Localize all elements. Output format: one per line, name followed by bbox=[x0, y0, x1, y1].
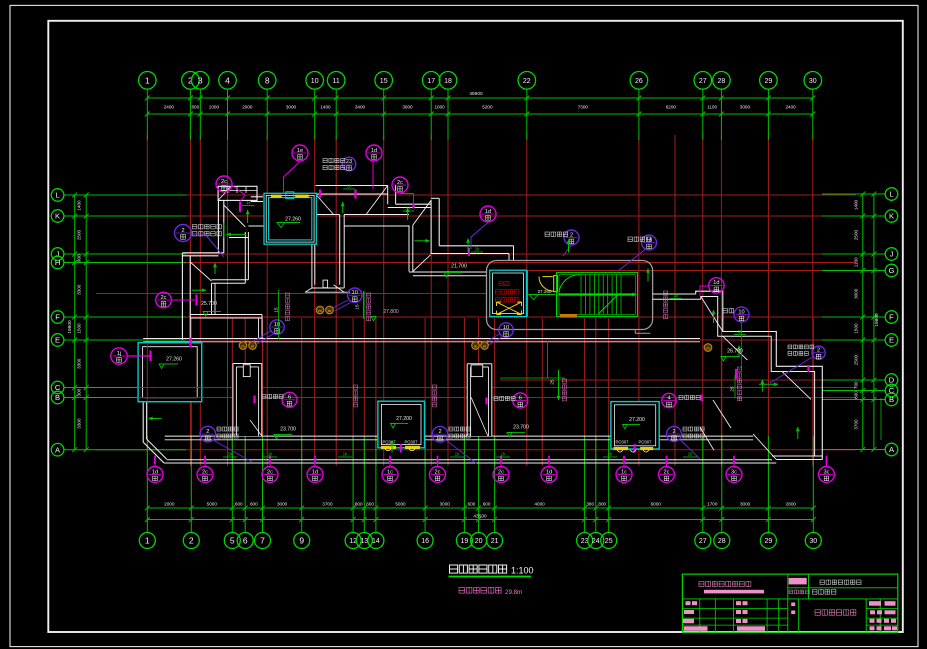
svg-text:1:100: 1:100 bbox=[511, 566, 534, 576]
svg-text:1: 1 bbox=[145, 75, 150, 85]
svg-text:B: B bbox=[889, 395, 894, 404]
svg-text:7300: 7300 bbox=[578, 105, 589, 110]
svg-text:27: 27 bbox=[699, 78, 707, 85]
svg-text:10: 10 bbox=[274, 322, 280, 328]
svg-text:1100: 1100 bbox=[707, 105, 717, 110]
svg-text:1500: 1500 bbox=[77, 323, 82, 334]
svg-text:45900: 45900 bbox=[469, 91, 483, 97]
svg-text:22: 22 bbox=[523, 78, 531, 85]
svg-text:PO307: PO307 bbox=[615, 440, 629, 445]
svg-text:21.700: 21.700 bbox=[451, 264, 467, 270]
svg-text:1c: 1c bbox=[387, 469, 393, 475]
svg-text:1d: 1d bbox=[646, 237, 652, 243]
svg-text:3400: 3400 bbox=[355, 105, 366, 110]
svg-text:2: 2 bbox=[438, 429, 441, 435]
svg-text:1e: 1e bbox=[297, 148, 303, 154]
svg-text:3000: 3000 bbox=[440, 502, 451, 507]
svg-text:25.700: 25.700 bbox=[201, 301, 217, 307]
svg-text:1d: 1d bbox=[485, 209, 491, 215]
svg-text:15: 15 bbox=[274, 307, 279, 313]
svg-text:F: F bbox=[889, 313, 894, 322]
svg-text:2000: 2000 bbox=[164, 502, 175, 507]
svg-text:2400: 2400 bbox=[785, 105, 796, 110]
svg-text:380: 380 bbox=[586, 502, 594, 507]
svg-text:6: 6 bbox=[288, 395, 291, 401]
svg-text:8: 8 bbox=[265, 75, 270, 85]
svg-text:15: 15 bbox=[380, 78, 388, 85]
svg-text:PO307: PO307 bbox=[382, 440, 396, 445]
svg-text:27: 27 bbox=[699, 538, 707, 545]
svg-text:15: 15 bbox=[355, 304, 360, 310]
svg-text:21: 21 bbox=[491, 538, 499, 545]
svg-text:27.200: 27.200 bbox=[629, 417, 645, 423]
svg-text:1400: 1400 bbox=[77, 200, 82, 211]
svg-text:800: 800 bbox=[598, 502, 606, 507]
svg-text:29: 29 bbox=[765, 538, 773, 545]
svg-text:24: 24 bbox=[592, 538, 600, 545]
svg-text:10: 10 bbox=[503, 325, 509, 331]
svg-text:3c: 3c bbox=[731, 469, 737, 475]
svg-text:2000: 2000 bbox=[242, 105, 253, 110]
svg-text:10: 10 bbox=[311, 78, 319, 85]
svg-text:14: 14 bbox=[372, 538, 380, 545]
svg-text:900: 900 bbox=[77, 254, 82, 262]
svg-text:3000: 3000 bbox=[854, 288, 859, 299]
svg-text:23.700: 23.700 bbox=[280, 427, 296, 433]
svg-text:20: 20 bbox=[475, 538, 483, 545]
svg-text:11: 11 bbox=[333, 78, 340, 85]
svg-text:700: 700 bbox=[854, 381, 859, 389]
svg-text:6: 6 bbox=[519, 395, 522, 401]
svg-text:2: 2 bbox=[672, 429, 675, 435]
svg-text:600: 600 bbox=[250, 502, 258, 507]
svg-text:25: 25 bbox=[550, 379, 555, 385]
svg-text:26.700: 26.700 bbox=[727, 349, 743, 355]
svg-text:1d: 1d bbox=[546, 469, 552, 475]
svg-text:26: 26 bbox=[635, 78, 643, 85]
svg-text:1: 1 bbox=[145, 536, 150, 546]
svg-text:30: 30 bbox=[809, 78, 817, 85]
svg-text:3000: 3000 bbox=[286, 105, 297, 110]
svg-text:1d: 1d bbox=[312, 469, 318, 475]
svg-text:3700: 3700 bbox=[322, 502, 333, 507]
svg-text:2c: 2c bbox=[161, 295, 167, 301]
svg-text:J: J bbox=[890, 250, 894, 259]
svg-text:23.700: 23.700 bbox=[513, 425, 529, 431]
svg-text:5200: 5200 bbox=[482, 105, 493, 110]
svg-text:600: 600 bbox=[235, 502, 243, 507]
svg-text:1700: 1700 bbox=[707, 502, 718, 507]
svg-text:L: L bbox=[889, 190, 893, 199]
svg-text:2c: 2c bbox=[498, 469, 504, 475]
svg-text:PO307: PO307 bbox=[404, 440, 418, 445]
svg-text:2: 2 bbox=[181, 228, 184, 234]
svg-text:28: 28 bbox=[718, 538, 726, 545]
svg-text:28: 28 bbox=[718, 78, 726, 85]
svg-text:1000: 1000 bbox=[434, 105, 445, 110]
svg-text:2c: 2c bbox=[664, 469, 670, 475]
svg-text:19800: 19800 bbox=[67, 320, 73, 334]
svg-text:5: 5 bbox=[230, 536, 235, 546]
svg-text:1d: 1d bbox=[713, 280, 719, 286]
svg-text:5000: 5000 bbox=[395, 502, 406, 507]
svg-text:10: 10 bbox=[352, 290, 358, 296]
svg-text:5000: 5000 bbox=[207, 502, 218, 507]
svg-text:19: 19 bbox=[461, 538, 469, 545]
svg-text:600: 600 bbox=[468, 502, 476, 507]
svg-text:1000: 1000 bbox=[209, 105, 220, 110]
svg-text:E: E bbox=[889, 336, 894, 345]
svg-text:D: D bbox=[889, 376, 895, 385]
svg-text:1d: 1d bbox=[152, 469, 158, 475]
svg-text:29.8m: 29.8m bbox=[505, 589, 522, 596]
svg-text:2500: 2500 bbox=[854, 354, 859, 365]
svg-text:G: G bbox=[889, 266, 895, 275]
svg-text:19800: 19800 bbox=[874, 313, 880, 327]
svg-text:2500: 2500 bbox=[854, 229, 859, 240]
svg-text:3300: 3300 bbox=[77, 284, 82, 295]
svg-text:2c: 2c bbox=[435, 469, 441, 475]
svg-text:4: 4 bbox=[225, 75, 230, 85]
svg-text:2c: 2c bbox=[221, 179, 227, 185]
svg-text:600: 600 bbox=[854, 391, 859, 399]
svg-text:2c: 2c bbox=[267, 469, 273, 475]
svg-text:3000: 3000 bbox=[402, 105, 413, 110]
svg-text:2c: 2c bbox=[202, 469, 208, 475]
svg-text:43500: 43500 bbox=[473, 513, 487, 519]
svg-text:3000: 3000 bbox=[277, 502, 288, 507]
svg-text:13: 13 bbox=[360, 538, 368, 545]
svg-text:800: 800 bbox=[192, 105, 200, 110]
svg-text:10: 10 bbox=[738, 309, 744, 315]
svg-text:1j: 1j bbox=[117, 351, 121, 357]
svg-text:300: 300 bbox=[77, 388, 82, 396]
svg-text:25: 25 bbox=[605, 538, 613, 545]
svg-text:18: 18 bbox=[444, 78, 452, 85]
svg-text:F: F bbox=[55, 313, 60, 322]
svg-text:K: K bbox=[889, 212, 894, 221]
svg-text:3000: 3000 bbox=[740, 105, 751, 110]
svg-text:3300: 3300 bbox=[77, 358, 82, 369]
svg-text:2400: 2400 bbox=[164, 105, 175, 110]
svg-text:23: 23 bbox=[346, 159, 352, 165]
svg-text:E: E bbox=[55, 336, 60, 345]
svg-text:K: K bbox=[55, 212, 60, 221]
svg-text:1c: 1c bbox=[621, 469, 627, 475]
svg-text:2: 2 bbox=[570, 232, 573, 238]
svg-text:1d: 1d bbox=[371, 148, 377, 154]
svg-text:3000: 3000 bbox=[740, 502, 751, 507]
svg-text:27.260: 27.260 bbox=[285, 216, 301, 222]
svg-text:600: 600 bbox=[366, 502, 374, 507]
svg-text:1500: 1500 bbox=[854, 323, 859, 334]
svg-text:27.200: 27.200 bbox=[396, 416, 412, 422]
svg-text:1100: 1100 bbox=[854, 257, 859, 267]
svg-text:6: 6 bbox=[243, 536, 248, 546]
svg-text:1400: 1400 bbox=[854, 199, 859, 210]
svg-text:27.260: 27.260 bbox=[537, 289, 551, 294]
svg-text:2800: 2800 bbox=[786, 502, 797, 507]
svg-text:4000: 4000 bbox=[534, 502, 545, 507]
svg-text:3c: 3c bbox=[824, 469, 830, 475]
svg-text:2: 2 bbox=[817, 348, 820, 354]
svg-text:27.800: 27.800 bbox=[383, 309, 399, 315]
svg-text:17: 17 bbox=[427, 78, 435, 85]
svg-text:2c: 2c bbox=[397, 180, 403, 186]
svg-text:L: L bbox=[55, 191, 59, 200]
svg-text:PO307: PO307 bbox=[638, 440, 652, 445]
svg-text:1400: 1400 bbox=[320, 105, 331, 110]
svg-text:7: 7 bbox=[260, 536, 265, 546]
svg-text:3: 3 bbox=[198, 75, 203, 85]
svg-text:B: B bbox=[55, 393, 60, 402]
svg-text:9: 9 bbox=[299, 536, 304, 546]
svg-text:30: 30 bbox=[809, 538, 817, 545]
svg-text:2: 2 bbox=[206, 429, 209, 435]
svg-text:29: 29 bbox=[765, 78, 773, 85]
svg-text:800: 800 bbox=[355, 502, 363, 507]
svg-text:600: 600 bbox=[483, 502, 491, 507]
svg-text:27.260: 27.260 bbox=[166, 357, 182, 363]
svg-text:H: H bbox=[55, 258, 60, 267]
svg-text:6200: 6200 bbox=[666, 105, 677, 110]
svg-text:4: 4 bbox=[667, 395, 670, 401]
svg-text:2500: 2500 bbox=[77, 229, 82, 240]
svg-text:3700: 3700 bbox=[854, 419, 859, 430]
svg-text:16: 16 bbox=[421, 538, 429, 545]
svg-text:2: 2 bbox=[189, 536, 194, 546]
svg-text:3300: 3300 bbox=[77, 418, 82, 429]
svg-text:25: 25 bbox=[730, 386, 735, 392]
svg-text:6000: 6000 bbox=[651, 502, 662, 507]
